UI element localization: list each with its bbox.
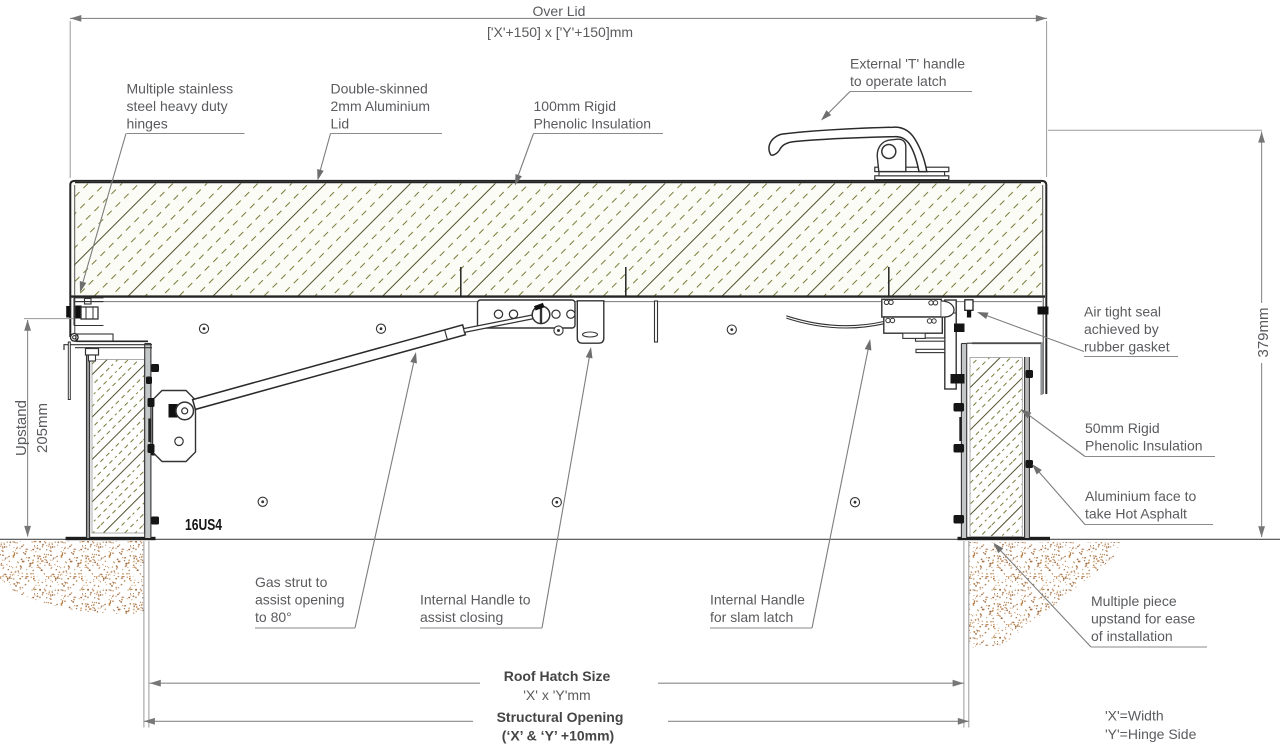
svg-text:'X' x 'Y'mm: 'X' x 'Y'mm — [523, 687, 590, 703]
svg-text:Double-skinned: Double-skinned — [331, 81, 428, 97]
svg-text:Lid: Lid — [331, 116, 350, 132]
svg-text:100mm Rigid: 100mm Rigid — [534, 98, 616, 114]
svg-text:Gas strut to: Gas strut to — [255, 574, 328, 590]
svg-text:hinges: hinges — [127, 116, 168, 132]
svg-text:Phenolic Insulation: Phenolic Insulation — [534, 116, 652, 132]
svg-text:to 80°: to 80° — [255, 609, 292, 625]
svg-text:assist opening: assist opening — [255, 592, 345, 608]
svg-text:steel heavy duty: steel heavy duty — [127, 98, 228, 114]
svg-text:achieved by: achieved by — [1084, 321, 1159, 337]
svg-text:of installation: of installation — [1091, 628, 1173, 644]
svg-text:(‘X’ & ‘Y’ +10mm): (‘X’ & ‘Y’ +10mm) — [502, 728, 614, 744]
svg-text:Over Lid: Over Lid — [533, 3, 586, 19]
svg-text:Multiple stainless: Multiple stainless — [127, 81, 234, 97]
svg-text:['X'+150] x ['Y'+150]mm: ['X'+150] x ['Y'+150]mm — [487, 24, 633, 40]
svg-text:379mm: 379mm — [1255, 307, 1272, 357]
svg-text:External 'T' handle: External 'T' handle — [850, 56, 965, 72]
svg-text:upstand for ease: upstand for ease — [1091, 611, 1196, 627]
svg-text:'X'=Width: 'X'=Width — [1105, 708, 1164, 724]
svg-text:Structural Opening: Structural Opening — [497, 709, 624, 725]
svg-text:205mm: 205mm — [34, 403, 51, 453]
svg-text:Internal Handle to: Internal Handle to — [420, 592, 531, 608]
svg-text:Air tight seal: Air tight seal — [1084, 304, 1161, 320]
svg-text:Upstand: Upstand — [13, 400, 30, 456]
svg-text:'Y'=Hinge Side: 'Y'=Hinge Side — [1105, 726, 1197, 742]
svg-text:Aluminium face to: Aluminium face to — [1085, 488, 1196, 504]
svg-text:Internal Handle: Internal Handle — [710, 592, 805, 608]
svg-text:rubber gasket: rubber gasket — [1084, 339, 1170, 355]
svg-text:take Hot Asphalt: take Hot Asphalt — [1085, 506, 1187, 522]
svg-text:2mm Aluminium: 2mm Aluminium — [331, 98, 431, 114]
svg-text:Phenolic Insulation: Phenolic Insulation — [1085, 438, 1203, 454]
svg-text:assist closing: assist closing — [420, 609, 503, 625]
svg-text:50mm Rigid: 50mm Rigid — [1085, 420, 1160, 436]
svg-text:to operate latch: to operate latch — [850, 73, 947, 89]
svg-text:Roof Hatch Size: Roof Hatch Size — [504, 668, 611, 684]
svg-text:Multiple piece: Multiple piece — [1091, 593, 1177, 609]
svg-text:16US4: 16US4 — [185, 517, 222, 534]
svg-text:for slam latch: for slam latch — [710, 609, 793, 625]
